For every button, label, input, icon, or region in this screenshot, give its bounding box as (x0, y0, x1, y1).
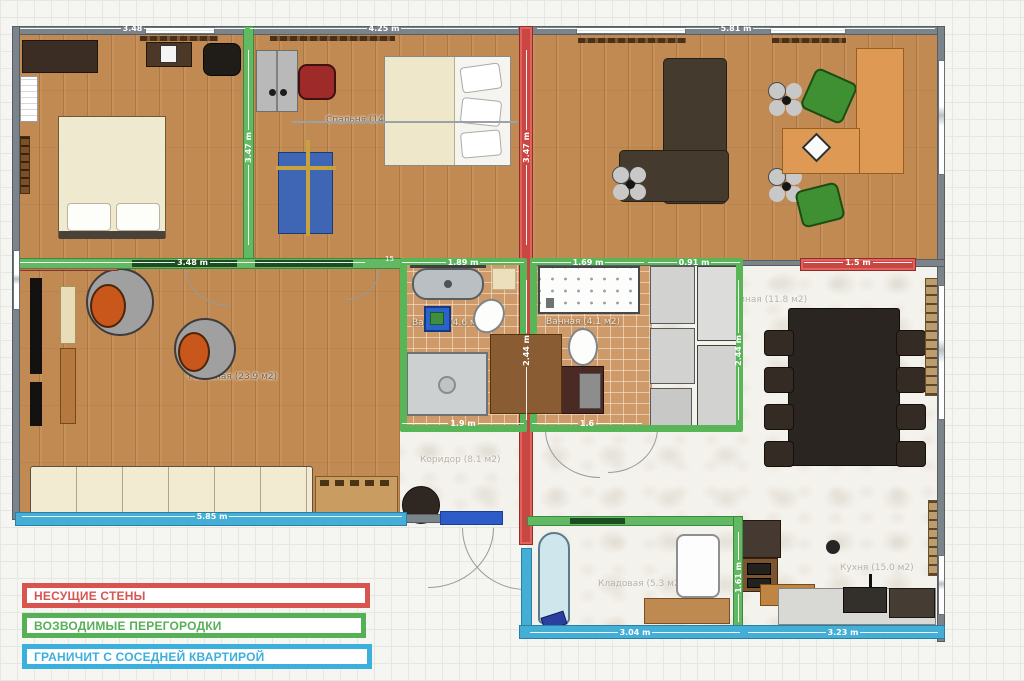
armchair-red[interactable] (298, 64, 336, 100)
dim-dining-red: 1.5 m (804, 258, 912, 267)
dim-top-left: 3.48 (20, 24, 245, 33)
window[interactable] (938, 555, 945, 615)
tv-panel[interactable] (30, 278, 42, 374)
dim-bath-large-bottom: 1.6 (532, 419, 642, 428)
dim-bath-red: 2.44 m (522, 280, 531, 420)
dining-chair[interactable] (764, 441, 794, 467)
window-sill (578, 38, 686, 43)
shelf-brown[interactable] (60, 348, 76, 424)
wall-green-door-lintel (570, 518, 625, 524)
entry-door-arc (462, 528, 526, 590)
tv-screen (160, 45, 177, 63)
dim-living-bottom: 5.85 m (22, 512, 402, 521)
wardrobe[interactable] (256, 50, 298, 112)
headboard (59, 231, 165, 239)
blanket (385, 57, 455, 165)
wall-blue-storage-left[interactable] (521, 548, 532, 626)
dim-mid-small: 15 (385, 255, 394, 263)
pillow (459, 62, 502, 93)
dim-top-mid: 4.25 m (250, 24, 518, 33)
exercise-bar (306, 140, 310, 236)
shelf-ladder[interactable] (20, 136, 30, 194)
curtain-rail (292, 121, 518, 123)
ball-chair-seat (178, 332, 210, 372)
legend-neighbor: ГРАНИЧИТ С СОСЕДНЕЙ КВАРТИРОЙ (22, 644, 372, 669)
dim-bath-green-right: 2.44 m (734, 280, 743, 420)
dining-chair[interactable] (764, 330, 794, 356)
wardrobe-knobs (269, 89, 276, 96)
dim-top-right: 5.81 m (537, 24, 935, 33)
room-label-storage: Кладовая (5.3 м2) (598, 579, 683, 589)
room-label-kitchen: Кухня (15.0 м2) (840, 563, 914, 573)
dining-chair[interactable] (896, 441, 926, 467)
dim-bath-large-top2: 0.91 m (648, 258, 740, 267)
dim-bath-large-top: 1.69 m (532, 258, 644, 267)
dining-table[interactable] (788, 308, 900, 466)
dining-chair[interactable] (896, 404, 926, 430)
armchair-black[interactable] (203, 43, 241, 76)
pendant-lamp (826, 540, 840, 554)
shelf-cream[interactable] (60, 286, 76, 344)
clover-table[interactable] (612, 166, 650, 204)
dining-chair[interactable] (896, 330, 926, 356)
dim-bath-small-bottom: 1.9 m (402, 419, 524, 428)
dim-mid-living: 3.48 m (20, 258, 365, 267)
sideboard-handles (320, 480, 394, 486)
window[interactable] (13, 250, 20, 310)
dim-bedroom-red: 3.47 m (522, 50, 531, 245)
exercise-bar (276, 166, 336, 170)
dim-storage-right: 1.61 m (734, 532, 743, 622)
pillow (460, 129, 502, 158)
tv-panel[interactable] (30, 382, 42, 426)
window[interactable] (938, 285, 945, 420)
entry-door-blue[interactable] (440, 511, 503, 525)
ball-chair[interactable] (174, 318, 236, 380)
bed-double[interactable] (384, 56, 511, 166)
ironing-board[interactable] (538, 532, 570, 624)
dresser[interactable] (22, 40, 98, 73)
dim-bedroom-green: 3.47 m (244, 50, 253, 245)
window-sill (772, 38, 846, 43)
ball-chair-seat (90, 284, 126, 328)
wall-dining-corner[interactable] (912, 259, 945, 267)
sofa-long[interactable] (30, 466, 313, 518)
oven-dark[interactable] (889, 588, 935, 618)
floor-plan-canvas: Спальня (14.8 м2) Гостиная (23.9 м2) Ван… (0, 0, 1024, 681)
desk-vertical[interactable] (856, 48, 904, 174)
window-sill (270, 36, 395, 41)
bed-single[interactable] (58, 116, 166, 238)
kitchen-sink (747, 563, 771, 575)
dim-bottom-kitchen: 3.23 m (748, 628, 938, 637)
dining-chair[interactable] (896, 367, 926, 393)
room-label-corridor: Коридор (8.1 м2) (420, 455, 500, 465)
dim-bottom-storage: 3.04 m (530, 628, 740, 637)
wall-entry-stub[interactable] (405, 514, 441, 523)
window-sill (140, 36, 218, 41)
dining-chair[interactable] (764, 367, 794, 393)
legend-partitions: ВОЗВОДИМЫЕ ПЕРЕГОРОДКИ (22, 613, 366, 638)
legend-load-bearing: НЕСУЩИЕ СТЕНЫ (22, 583, 370, 608)
dim-bath-small-top: 1.89 m (402, 258, 524, 267)
wall-green-storage-top[interactable] (527, 516, 743, 526)
ball-chair[interactable] (86, 268, 154, 336)
pillow (116, 203, 160, 231)
stove[interactable] (843, 587, 887, 613)
washing-machine[interactable] (676, 534, 720, 598)
legend-load-bearing-label: НЕСУЩИЕ СТЕНЫ (34, 589, 146, 603)
legend-partitions-label: ВОЗВОДИМЫЕ ПЕРЕГОРОДКИ (34, 619, 222, 633)
pillow (67, 203, 111, 231)
faucet (869, 574, 872, 588)
storage-counter[interactable] (644, 598, 730, 624)
window[interactable] (938, 60, 945, 175)
dining-chair[interactable] (764, 404, 794, 430)
legend-neighbor-label: ГРАНИЧИТ С СОСЕДНЕЙ КВАРТИРОЙ (34, 650, 264, 664)
radiator-panel[interactable] (20, 76, 38, 122)
